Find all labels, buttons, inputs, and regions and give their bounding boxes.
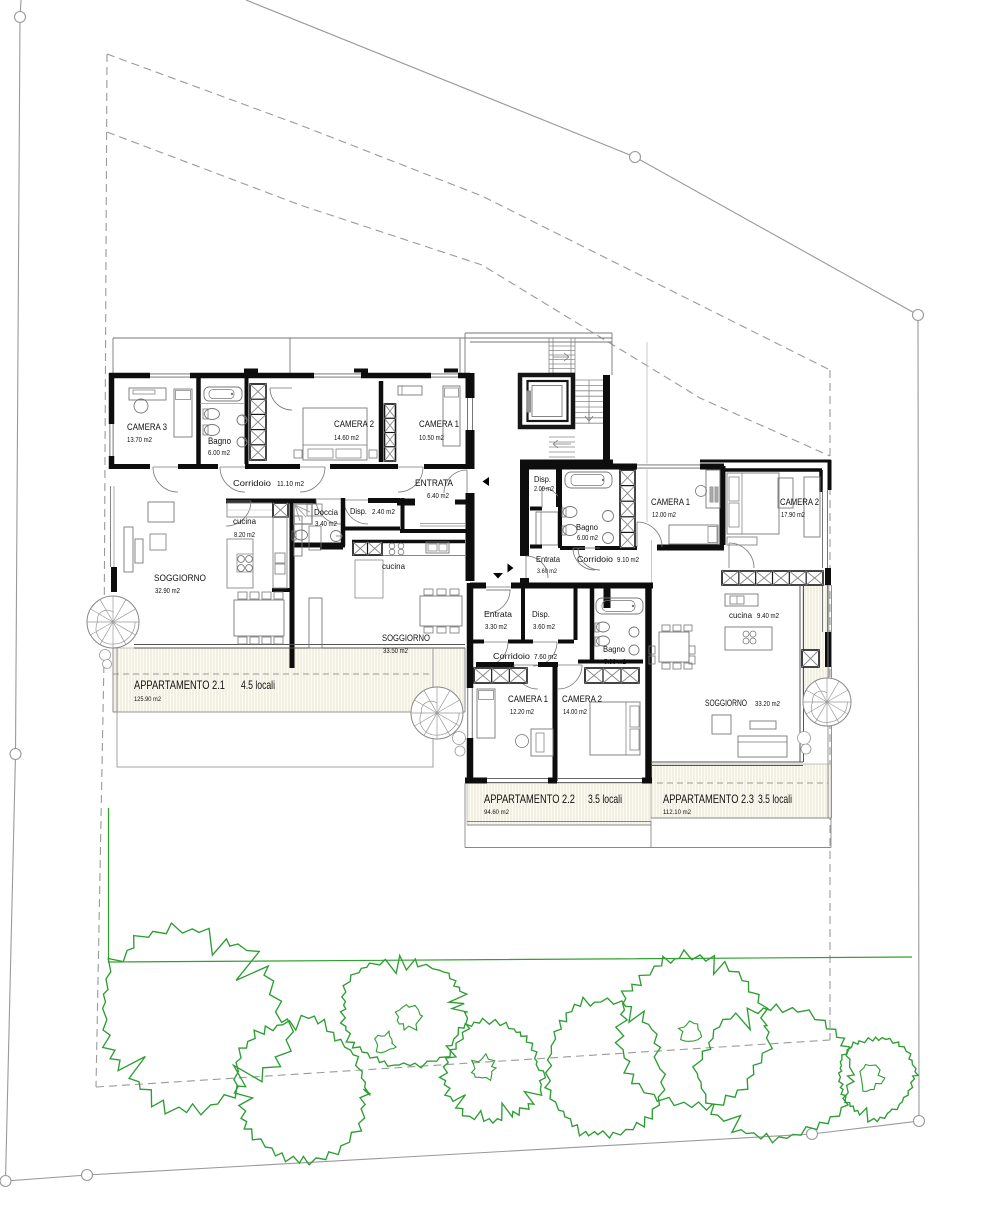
svg-text:Entrata: Entrata <box>536 555 561 564</box>
svg-text:CAMERA 1: CAMERA 1 <box>651 497 690 507</box>
svg-text:3.5 locali: 3.5 locali <box>758 792 792 806</box>
svg-text:cucina: cucina <box>233 516 256 526</box>
svg-text:cucina: cucina <box>729 610 752 620</box>
svg-text:Disp.: Disp. <box>350 506 367 516</box>
svg-text:APPARTAMENTO 2.1: APPARTAMENTO 2.1 <box>134 678 225 692</box>
svg-text:6.40 m2: 6.40 m2 <box>427 493 449 500</box>
svg-text:10.50 m2: 10.50 m2 <box>419 435 444 442</box>
svg-text:ENTRATA: ENTRATA <box>415 478 454 489</box>
svg-text:17.90 m2: 17.90 m2 <box>781 512 805 519</box>
svg-text:Doccia: Doccia <box>314 507 338 517</box>
svg-text:14.00 m2: 14.00 m2 <box>563 709 587 716</box>
svg-text:4.5 locali: 4.5 locali <box>241 678 275 692</box>
svg-text:CAMERA 1: CAMERA 1 <box>508 694 548 704</box>
svg-text:Bagno: Bagno <box>576 522 598 532</box>
svg-text:SOGGIORNO: SOGGIORNO <box>154 573 206 584</box>
svg-text:Corridoio: Corridoio <box>233 478 271 488</box>
svg-text:Disp.: Disp. <box>534 474 551 484</box>
svg-text:9.10 m2: 9.10 m2 <box>617 557 639 564</box>
svg-text:Bagno: Bagno <box>603 644 625 654</box>
svg-text:12.00 m2: 12.00 m2 <box>652 512 676 519</box>
svg-text:CAMERA 2: CAMERA 2 <box>334 419 374 430</box>
svg-text:32.90 m2: 32.90 m2 <box>155 588 180 595</box>
svg-text:5.90 m2: 5.90 m2 <box>604 659 626 666</box>
svg-text:8.20 m2: 8.20 m2 <box>234 532 255 539</box>
svg-text:33.50 m2: 33.50 m2 <box>383 648 408 655</box>
svg-text:13.70 m2: 13.70 m2 <box>127 437 152 444</box>
svg-text:6.00 m2: 6.00 m2 <box>577 535 598 542</box>
svg-text:Bagno: Bagno <box>208 436 231 446</box>
svg-text:33.20 m2: 33.20 m2 <box>755 701 780 708</box>
svg-text:CAMERA 1: CAMERA 1 <box>419 419 459 430</box>
svg-text:125.90 m2: 125.90 m2 <box>134 696 161 703</box>
svg-text:CAMERA 3: CAMERA 3 <box>127 422 167 433</box>
svg-text:CAMERA 2: CAMERA 2 <box>562 694 602 704</box>
svg-text:Corridoio: Corridoio <box>493 651 530 661</box>
svg-text:6.00 m2: 6.00 m2 <box>208 450 230 457</box>
svg-text:7.60 m2: 7.60 m2 <box>534 654 557 661</box>
svg-text:3.40 m2: 3.40 m2 <box>315 521 337 528</box>
svg-text:Corridoio: Corridoio <box>577 554 613 564</box>
svg-text:Entrata: Entrata <box>484 609 512 619</box>
svg-text:cucina: cucina <box>382 561 405 571</box>
svg-text:94.60 m2: 94.60 m2 <box>484 809 509 816</box>
svg-text:11.10 m2: 11.10 m2 <box>277 481 304 488</box>
svg-text:9.40 m2: 9.40 m2 <box>757 613 779 620</box>
svg-text:SOGGIORNO: SOGGIORNO <box>382 633 430 644</box>
svg-text:112.10 m2: 112.10 m2 <box>663 809 691 816</box>
svg-text:3.5 locali: 3.5 locali <box>588 792 622 806</box>
svg-text:3.60 m2: 3.60 m2 <box>537 568 557 575</box>
svg-text:SOGGIORNO: SOGGIORNO <box>705 698 747 709</box>
svg-text:3.30 m2: 3.30 m2 <box>485 624 507 631</box>
svg-text:2.40 m2: 2.40 m2 <box>372 509 395 516</box>
svg-text:CAMERA 2: CAMERA 2 <box>780 497 819 507</box>
svg-text:3.60 m2: 3.60 m2 <box>533 624 555 631</box>
svg-text:Disp.: Disp. <box>532 609 550 619</box>
svg-text:14.60 m2: 14.60 m2 <box>334 435 359 442</box>
svg-text:APPARTAMENTO 2.3: APPARTAMENTO 2.3 <box>663 792 754 806</box>
svg-text:2.00 m2: 2.00 m2 <box>534 486 554 493</box>
svg-text:APPARTAMENTO 2.2: APPARTAMENTO 2.2 <box>484 792 575 806</box>
svg-text:12.20 m2: 12.20 m2 <box>510 709 534 716</box>
